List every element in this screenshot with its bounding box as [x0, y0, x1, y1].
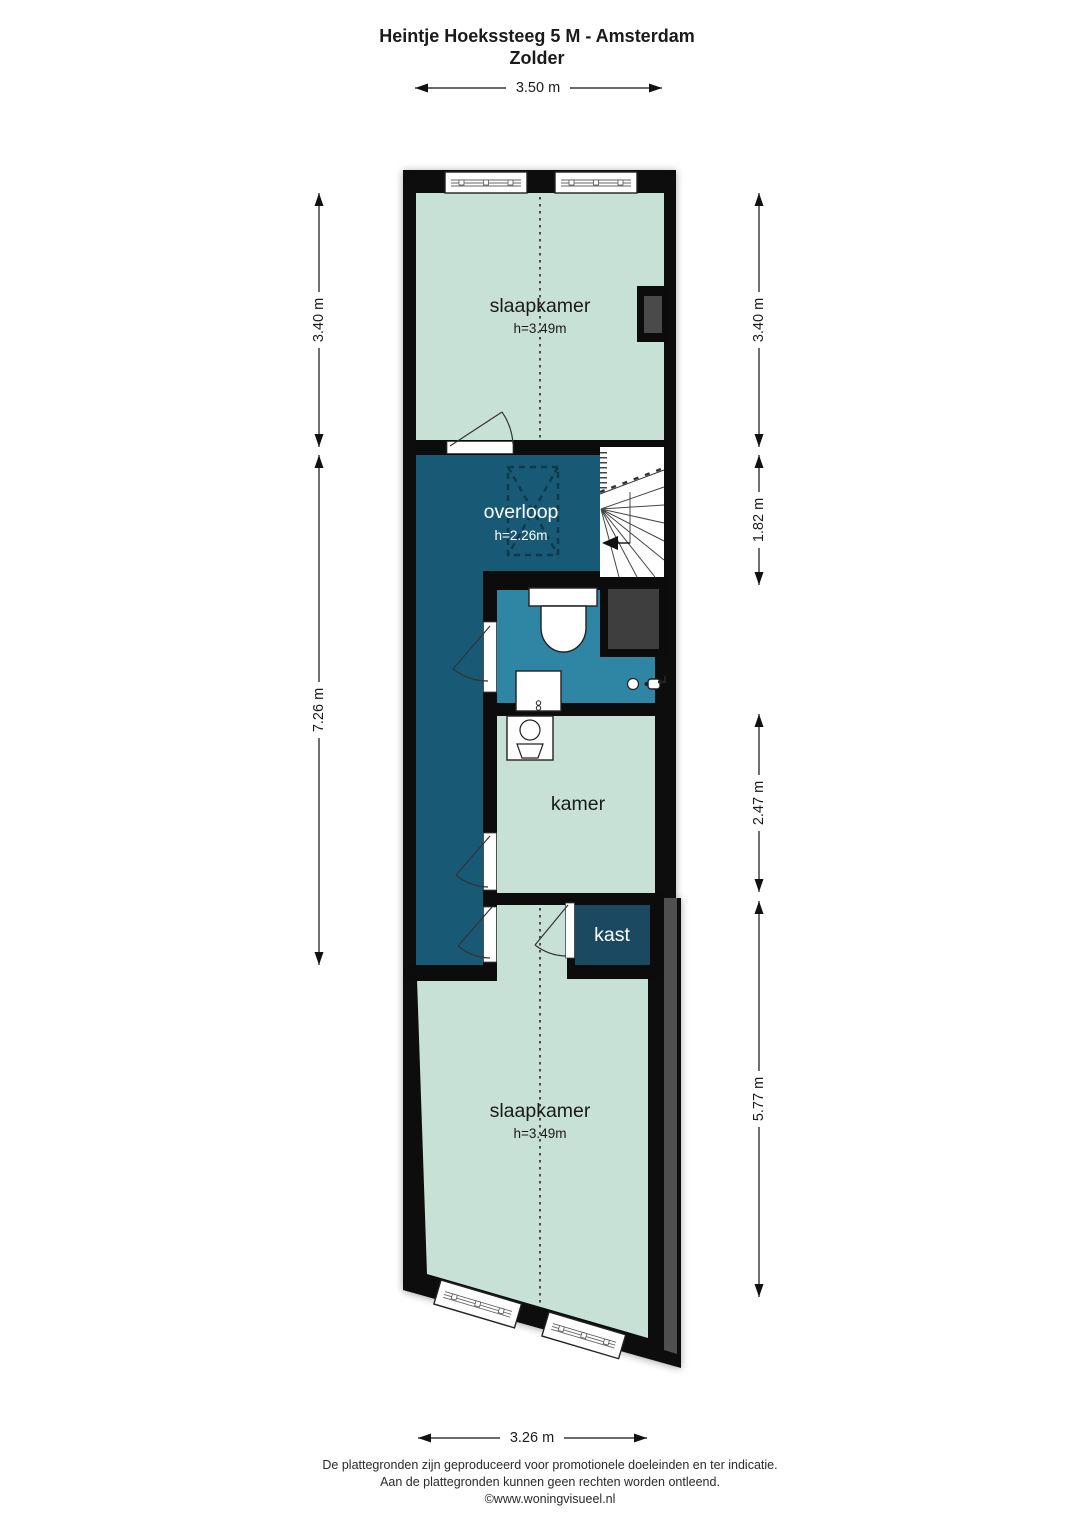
window [445, 172, 527, 193]
room-vestibule [497, 905, 567, 979]
label-overloop: overloop [484, 501, 559, 523]
dimension-bottom-label: 3.26 m [510, 1430, 554, 1446]
dimension-top-label: 3.50 m [516, 80, 560, 96]
label-slaapkamer-bottom: slaapkamer [490, 1100, 591, 1122]
dimension-right-577-label: 5.77 m [751, 1077, 767, 1121]
dimension-top: 3.50 m [415, 80, 662, 96]
dimension-bottom: 3.26 m [418, 1430, 647, 1446]
window [555, 172, 637, 193]
dimension-right-577: 5.77 m [751, 901, 767, 1297]
dimension-left-726-label: 7.26 m [311, 688, 327, 732]
floorplan-drawing: Heintje Hoekssteeg 5 M - Amsterdam Zolde… [0, 0, 1080, 1527]
chimney-niche [637, 286, 668, 342]
label-slaapkamer-top-height: h=3.49m [514, 321, 567, 336]
footer: De plattegronden zijn geproduceerd voor … [322, 1458, 777, 1506]
dimension-left-726: 7.26 m [311, 455, 327, 965]
footer-line-1: De plattegronden zijn geproduceerd voor … [322, 1458, 777, 1472]
label-slaapkamer-top: slaapkamer [490, 295, 591, 317]
neighbor-wall [664, 898, 677, 1354]
label-kast: kast [594, 924, 630, 946]
stairs [600, 447, 664, 577]
footer-line-2: Aan de plattegronden kunnen geen rechten… [380, 1475, 720, 1489]
dimension-right-182: 1.82 m [751, 455, 767, 585]
washbasin-icon [507, 716, 553, 760]
floorplan-page: Heintje Hoekssteeg 5 M - Amsterdam Zolde… [0, 0, 1080, 1527]
dimension-left-340-label: 3.40 m [311, 298, 327, 342]
dimension-right-340-label: 3.40 m [751, 298, 767, 342]
washing-machine-icon [516, 671, 561, 711]
drain-icon [628, 679, 639, 690]
label-slaapkamer-bottom-height: h=3.49m [514, 1126, 567, 1141]
dimension-right-247-label: 2.47 m [751, 781, 767, 825]
dimension-right-182-label: 1.82 m [751, 498, 767, 542]
shaft [600, 577, 666, 657]
footer-line-3: ©www.woningvisueel.nl [485, 1492, 616, 1506]
floor-subtitle: Zolder [509, 48, 564, 68]
label-kamer: kamer [551, 793, 606, 815]
label-overloop-height: h=2.26m [495, 528, 548, 543]
dimension-left-340: 3.40 m [311, 193, 327, 447]
dimension-right-247: 2.47 m [751, 714, 767, 892]
page-title: Heintje Hoekssteeg 5 M - Amsterdam [379, 26, 694, 46]
dimension-right-340: 3.40 m [751, 193, 767, 447]
